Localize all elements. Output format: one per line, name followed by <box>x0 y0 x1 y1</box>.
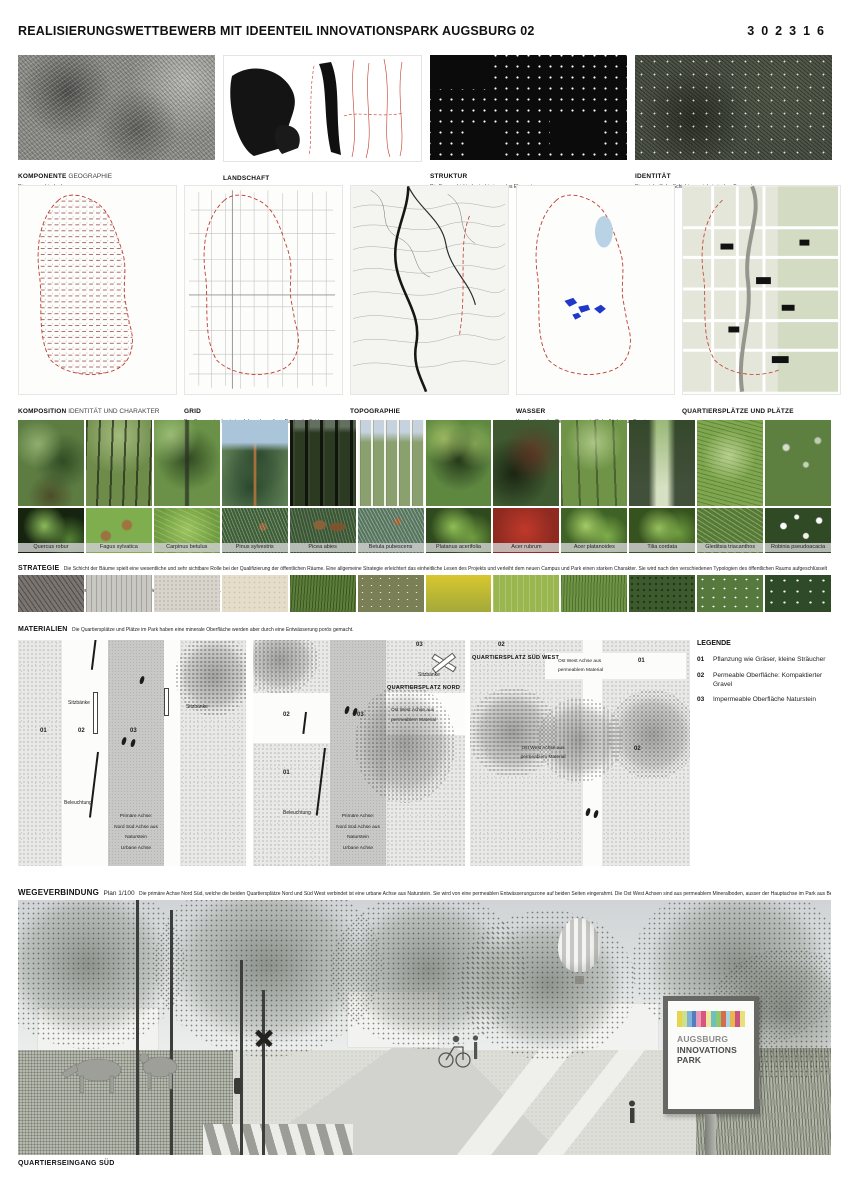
leaf-photo: Carpinus betulus <box>154 508 220 553</box>
tree-photo <box>154 420 220 506</box>
legend-text: Pflanzung wie Gräser, kleine Sträucher <box>713 656 825 665</box>
tree-photo <box>561 420 627 506</box>
material-swatch-flowering-shrub <box>697 575 763 612</box>
label-quartiersplatz-nord: QUARTIERSPLATZ NORD <box>387 685 460 691</box>
species-label: Betula pubescens <box>358 543 424 552</box>
panel-caption: KOMPOSITION IDENTITÄT UND CHARAKTER <box>18 399 177 419</box>
sign-logo-stripes <box>677 1011 745 1027</box>
label-sitzbaenke: Sitzbänke <box>418 672 440 678</box>
pedestrian <box>629 1101 635 1124</box>
plan-scale-ref: Plan 1/100 <box>103 890 134 897</box>
detail-plans: 01 Sitzbänke 02 03 Sitzbänke Beleuchtung… <box>18 640 831 885</box>
grid-gap <box>430 55 490 89</box>
species-label: Fagus sylvatica <box>86 543 152 552</box>
label-ost-west-achse: Ost West Achse aus permeablem Material <box>391 706 461 725</box>
panel-identitaet: IDENTITÄT Eine einheitliche Schicht aus … <box>635 55 832 192</box>
panel-geographie: KOMPONENTE GEOGRAPHIE Die geographische … <box>18 55 215 192</box>
label-02: 02 <box>78 728 85 734</box>
label-03: 03 <box>357 712 364 718</box>
material-swatch-ivy <box>629 575 695 612</box>
landscape-map-drawing <box>224 56 419 159</box>
leaf-photo: Acer platanoides <box>561 508 627 553</box>
tree-column: Acer platanoides <box>561 420 627 553</box>
species-label: Acer platanoides <box>561 543 627 552</box>
cyclists <box>439 1035 478 1067</box>
materialien-label: MATERIALIEN <box>18 626 68 633</box>
label-03: 03 <box>130 728 137 734</box>
rendering-quartierseingang: AUGSBURG INNOVATIONS PARK <box>18 900 831 1155</box>
caption-rest: GEOGRAPHIE <box>67 173 113 180</box>
sign-pole <box>705 1114 716 1155</box>
forest-aerial-photo <box>635 55 832 160</box>
logo-stripe <box>740 1011 745 1027</box>
tree-photo <box>290 420 356 506</box>
sign-line-innovations: INNOVATIONS <box>677 1045 745 1056</box>
tree-photo <box>426 420 492 506</box>
caption-rest: IDENTITÄT UND CHARAKTER <box>66 408 159 415</box>
caption-bold: IDENTITÄT <box>635 173 671 180</box>
tree-photo <box>493 420 559 506</box>
material-swatch-rapeseed-field <box>426 575 492 612</box>
material-swatch-flowering-hedge <box>765 575 831 612</box>
tree-column: Gleditsia triacanthos <box>697 420 763 553</box>
panel-wasser: WASSER Verarbeitung des Regenwassers in … <box>516 185 675 425</box>
leaf-photo: Robinia pseudoacacia <box>765 508 831 553</box>
panel-caption: QUARTIERSPLÄTZE UND PLÄTZE <box>682 399 841 419</box>
panel-caption: TOPOGRAPHIE <box>350 399 509 419</box>
wegeverbindung-label: WEGEVERBINDUNG <box>18 888 99 897</box>
grid-plan <box>184 185 343 395</box>
plaetze-drawing <box>683 186 838 392</box>
caption-bold: QUARTIERSPLÄTZE UND PLÄTZE <box>682 408 794 415</box>
header: REALISIERUNGSWETTBEWERB MIT IDEENTEIL IN… <box>18 24 831 38</box>
species-label: Picea abies <box>290 543 356 552</box>
tree-column: Acer rubrum <box>493 420 559 553</box>
leaf-photo: Betula pubescens <box>358 508 424 553</box>
komposition-drawing <box>19 186 174 392</box>
tree-column: Betula pubescens <box>358 420 424 553</box>
wasser-plan <box>516 185 675 395</box>
label-beleuchtung: Beleuchtung <box>64 800 92 806</box>
tree-photo <box>765 420 831 506</box>
tree-photo <box>697 420 763 506</box>
wegeverbindung-paragraph: WEGEVERBINDUNG Plan 1/100 Die primäre Ac… <box>18 880 831 902</box>
leaf-photo: Picea abies <box>290 508 356 553</box>
plaetze-plan <box>682 185 841 395</box>
page-title: REALISIERUNGSWETTBEWERB MIT IDEENTEIL IN… <box>18 24 535 38</box>
label-02: 02 <box>498 642 505 648</box>
material-swatch-stone-plank <box>86 575 152 612</box>
label-primaere-achse: Primäre Achse: Nord Süd Achse aus Naturs… <box>104 812 168 854</box>
bench <box>164 688 169 716</box>
caption-bold: LANDSCHAFT <box>223 175 269 182</box>
plan-band-permeable <box>253 693 330 743</box>
caption-bold: KOMPONENTE <box>18 173 67 180</box>
caption-bold: STRUKTUR <box>430 173 467 180</box>
material-swatch-lawn <box>493 575 559 612</box>
legend-num: 01 <box>697 656 713 665</box>
panel-grid: GRID Das Baumraster basiert auf dem ehem… <box>184 185 343 425</box>
caption-bold: GRID <box>184 408 201 415</box>
competition-board: REALISIERUNGSWETTBEWERB MIT IDEENTEIL IN… <box>0 0 849 1200</box>
plan-ost-west-gruenachse-nord: 03 Sitzbänke QUARTIERSPLATZ NORD Ost Wes… <box>253 640 465 866</box>
entry-code: 302316 <box>747 24 831 38</box>
plan-band-permeable <box>62 640 108 866</box>
panel-plaetze: QUARTIERSPLÄTZE UND PLÄTZE <box>682 185 841 425</box>
label-01: 01 <box>40 728 47 734</box>
grid-gap <box>550 115 600 145</box>
legend-title: LEGENDE <box>697 640 831 647</box>
tree-photo <box>629 420 695 506</box>
tree-column: Tilia cordata <box>629 420 695 553</box>
analysis-row: KOMPONENTE GEOGRAPHIE Die geographische … <box>18 55 831 192</box>
tree-sketch <box>345 674 465 814</box>
species-label: Platanus acerifolia <box>426 543 492 552</box>
leaf-photo: Fagus sylvatica <box>86 508 152 553</box>
bench <box>93 692 98 734</box>
tree-column: Carpinus betulus <box>154 420 220 553</box>
tree-column: Pinus sylvestris <box>222 420 288 553</box>
tree-photo <box>222 420 288 506</box>
label-03: 03 <box>416 642 423 648</box>
material-swatch-gravel-light <box>154 575 220 612</box>
label-02: 02 <box>283 712 290 718</box>
hot-air-balloon <box>558 918 600 972</box>
tree-grid-diagram <box>430 55 627 160</box>
grid-drawing <box>185 186 340 392</box>
caption-bold: TOPOGRAPHIE <box>350 408 400 415</box>
tree-column: Picea abies <box>290 420 356 553</box>
label-ost-west-achse: Ost West Achse aus permeablem Material <box>512 744 574 762</box>
legend-num: 03 <box>697 696 713 705</box>
panel-topographie: TOPOGRAPHIE <box>350 185 509 425</box>
species-label: Carpinus betulus <box>154 543 220 552</box>
tree-column: Quercus robur <box>18 420 84 553</box>
balloon-basket <box>575 976 584 984</box>
label-sitzbaenke: Sitzbänke <box>186 704 208 710</box>
tree-species-strip: Quercus roburFagus sylvaticaCarpinus bet… <box>18 420 831 553</box>
material-swatch-asphalt <box>18 575 84 612</box>
label-01: 01 <box>638 658 645 664</box>
leaf-photo: Pinus sylvestris <box>222 508 288 553</box>
plan-nord-sued-achse: 01 Sitzbänke 02 03 Sitzbänke Beleuchtung… <box>18 640 246 866</box>
species-label: Acer rubrum <box>493 543 559 552</box>
species-label: Robinia pseudoacacia <box>765 543 831 552</box>
aerial-photo <box>18 55 215 160</box>
topographie-drawing <box>351 186 506 392</box>
panel-landschaft: LANDSCHAFT Die existierende Landschaftss… <box>223 55 422 192</box>
caption-bold: KOMPOSITION <box>18 408 66 415</box>
legend-text: Impermeable Oberfläche Naturstein <box>713 696 816 705</box>
panel-struktur: STRUKTUR Die Baumschicht als strukturier… <box>430 55 627 192</box>
legend-num: 02 <box>697 672 713 690</box>
wegeverbindung-text: Die primäre Achse Nord Süd, welche die b… <box>139 891 831 897</box>
species-label: Pinus sylvestris <box>222 543 288 552</box>
komposition-plan <box>18 185 177 395</box>
label-01: 01 <box>283 770 290 776</box>
tree-photo <box>358 420 424 506</box>
leaf-photo: Acer rubrum <box>493 508 559 553</box>
legend-item: 02 Permeable Oberfläche: Kompaktierter G… <box>697 672 831 690</box>
species-label: Tilia cordata <box>629 543 695 552</box>
species-label: Gleditsia triacanthos <box>697 543 763 552</box>
species-label: Quercus robur <box>18 543 84 552</box>
park-sign-board: AUGSBURG INNOVATIONS PARK <box>663 996 759 1114</box>
leaf-photo: Tilia cordata <box>629 508 695 553</box>
tree-column: Platanus acerifolia <box>426 420 492 553</box>
topographie-plan <box>350 185 509 395</box>
plan-band-planting <box>18 640 62 866</box>
plan-ost-west-gruenachse: 02 QUARTIERSPLATZ SÜD WEST Ost West Achs… <box>470 640 690 866</box>
material-swatch-strip <box>18 575 831 612</box>
legend-item: 01 Pflanzung wie Gräser, kleine Sträuche… <box>697 656 831 665</box>
sign-line-park: PARK <box>677 1055 745 1066</box>
material-swatch-tall-grass <box>290 575 356 612</box>
label-primaere-achse: Primäre Achse: Nord Süd Achse aus Naturs… <box>327 812 389 854</box>
material-swatch-gravel-beige <box>222 575 288 612</box>
concept-row: KOMPOSITION IDENTITÄT UND CHARAKTER GRID… <box>18 185 831 425</box>
label-beleuchtung: Beleuchtung <box>283 810 311 816</box>
cow-silhouettes <box>62 1054 177 1094</box>
rendering-caption: QUARTIERSEINGANG SÜD <box>18 1160 115 1167</box>
strategie-label: STRATEGIE <box>18 565 59 572</box>
legend-text: Permeable Oberfläche: Kompaktierter Grav… <box>713 672 831 690</box>
material-swatch-grass-field <box>561 575 627 612</box>
sign-text: AUGSBURG INNOVATIONS PARK <box>677 1034 745 1066</box>
tree-photo <box>86 420 152 506</box>
label-sitzbaenke: Sitzbänke <box>68 700 90 706</box>
legend: LEGENDE 01 Pflanzung wie Gräser, kleine … <box>697 640 831 712</box>
materialien-paragraph: MATERIALIEN Die Quartiersplätze und Plät… <box>18 616 831 638</box>
leaf-photo: Gleditsia triacanthos <box>697 508 763 553</box>
sign-line-augsburg: AUGSBURG <box>677 1034 745 1045</box>
leaf-photo: Platanus acerifolia <box>426 508 492 553</box>
materialien-text: Die Quartiersplätze und Plätze im Park h… <box>72 627 354 633</box>
label-ost-west-achse: Ost West Achse aus permeablem Material <box>558 657 624 675</box>
leaf-photo: Quercus robur <box>18 508 84 553</box>
caption-bold: WASSER <box>516 408 545 415</box>
label-quartiersplatz-sued-west: QUARTIERSPLATZ SÜD WEST <box>472 655 559 661</box>
panel-komposition: KOMPOSITION IDENTITÄT UND CHARAKTER <box>18 185 177 425</box>
legend-item: 03 Impermeable Oberfläche Naturstein <box>697 696 831 705</box>
grid-gap <box>468 127 502 160</box>
tree-photo <box>18 420 84 506</box>
tree-column: Fagus sylvatica <box>86 420 152 553</box>
wasser-drawing <box>517 186 672 392</box>
label-02: 02 <box>634 746 641 752</box>
material-swatch-meadow <box>358 575 424 612</box>
landscape-structure-map <box>223 55 422 162</box>
tree-column: Robinia pseudoacacia <box>765 420 831 553</box>
